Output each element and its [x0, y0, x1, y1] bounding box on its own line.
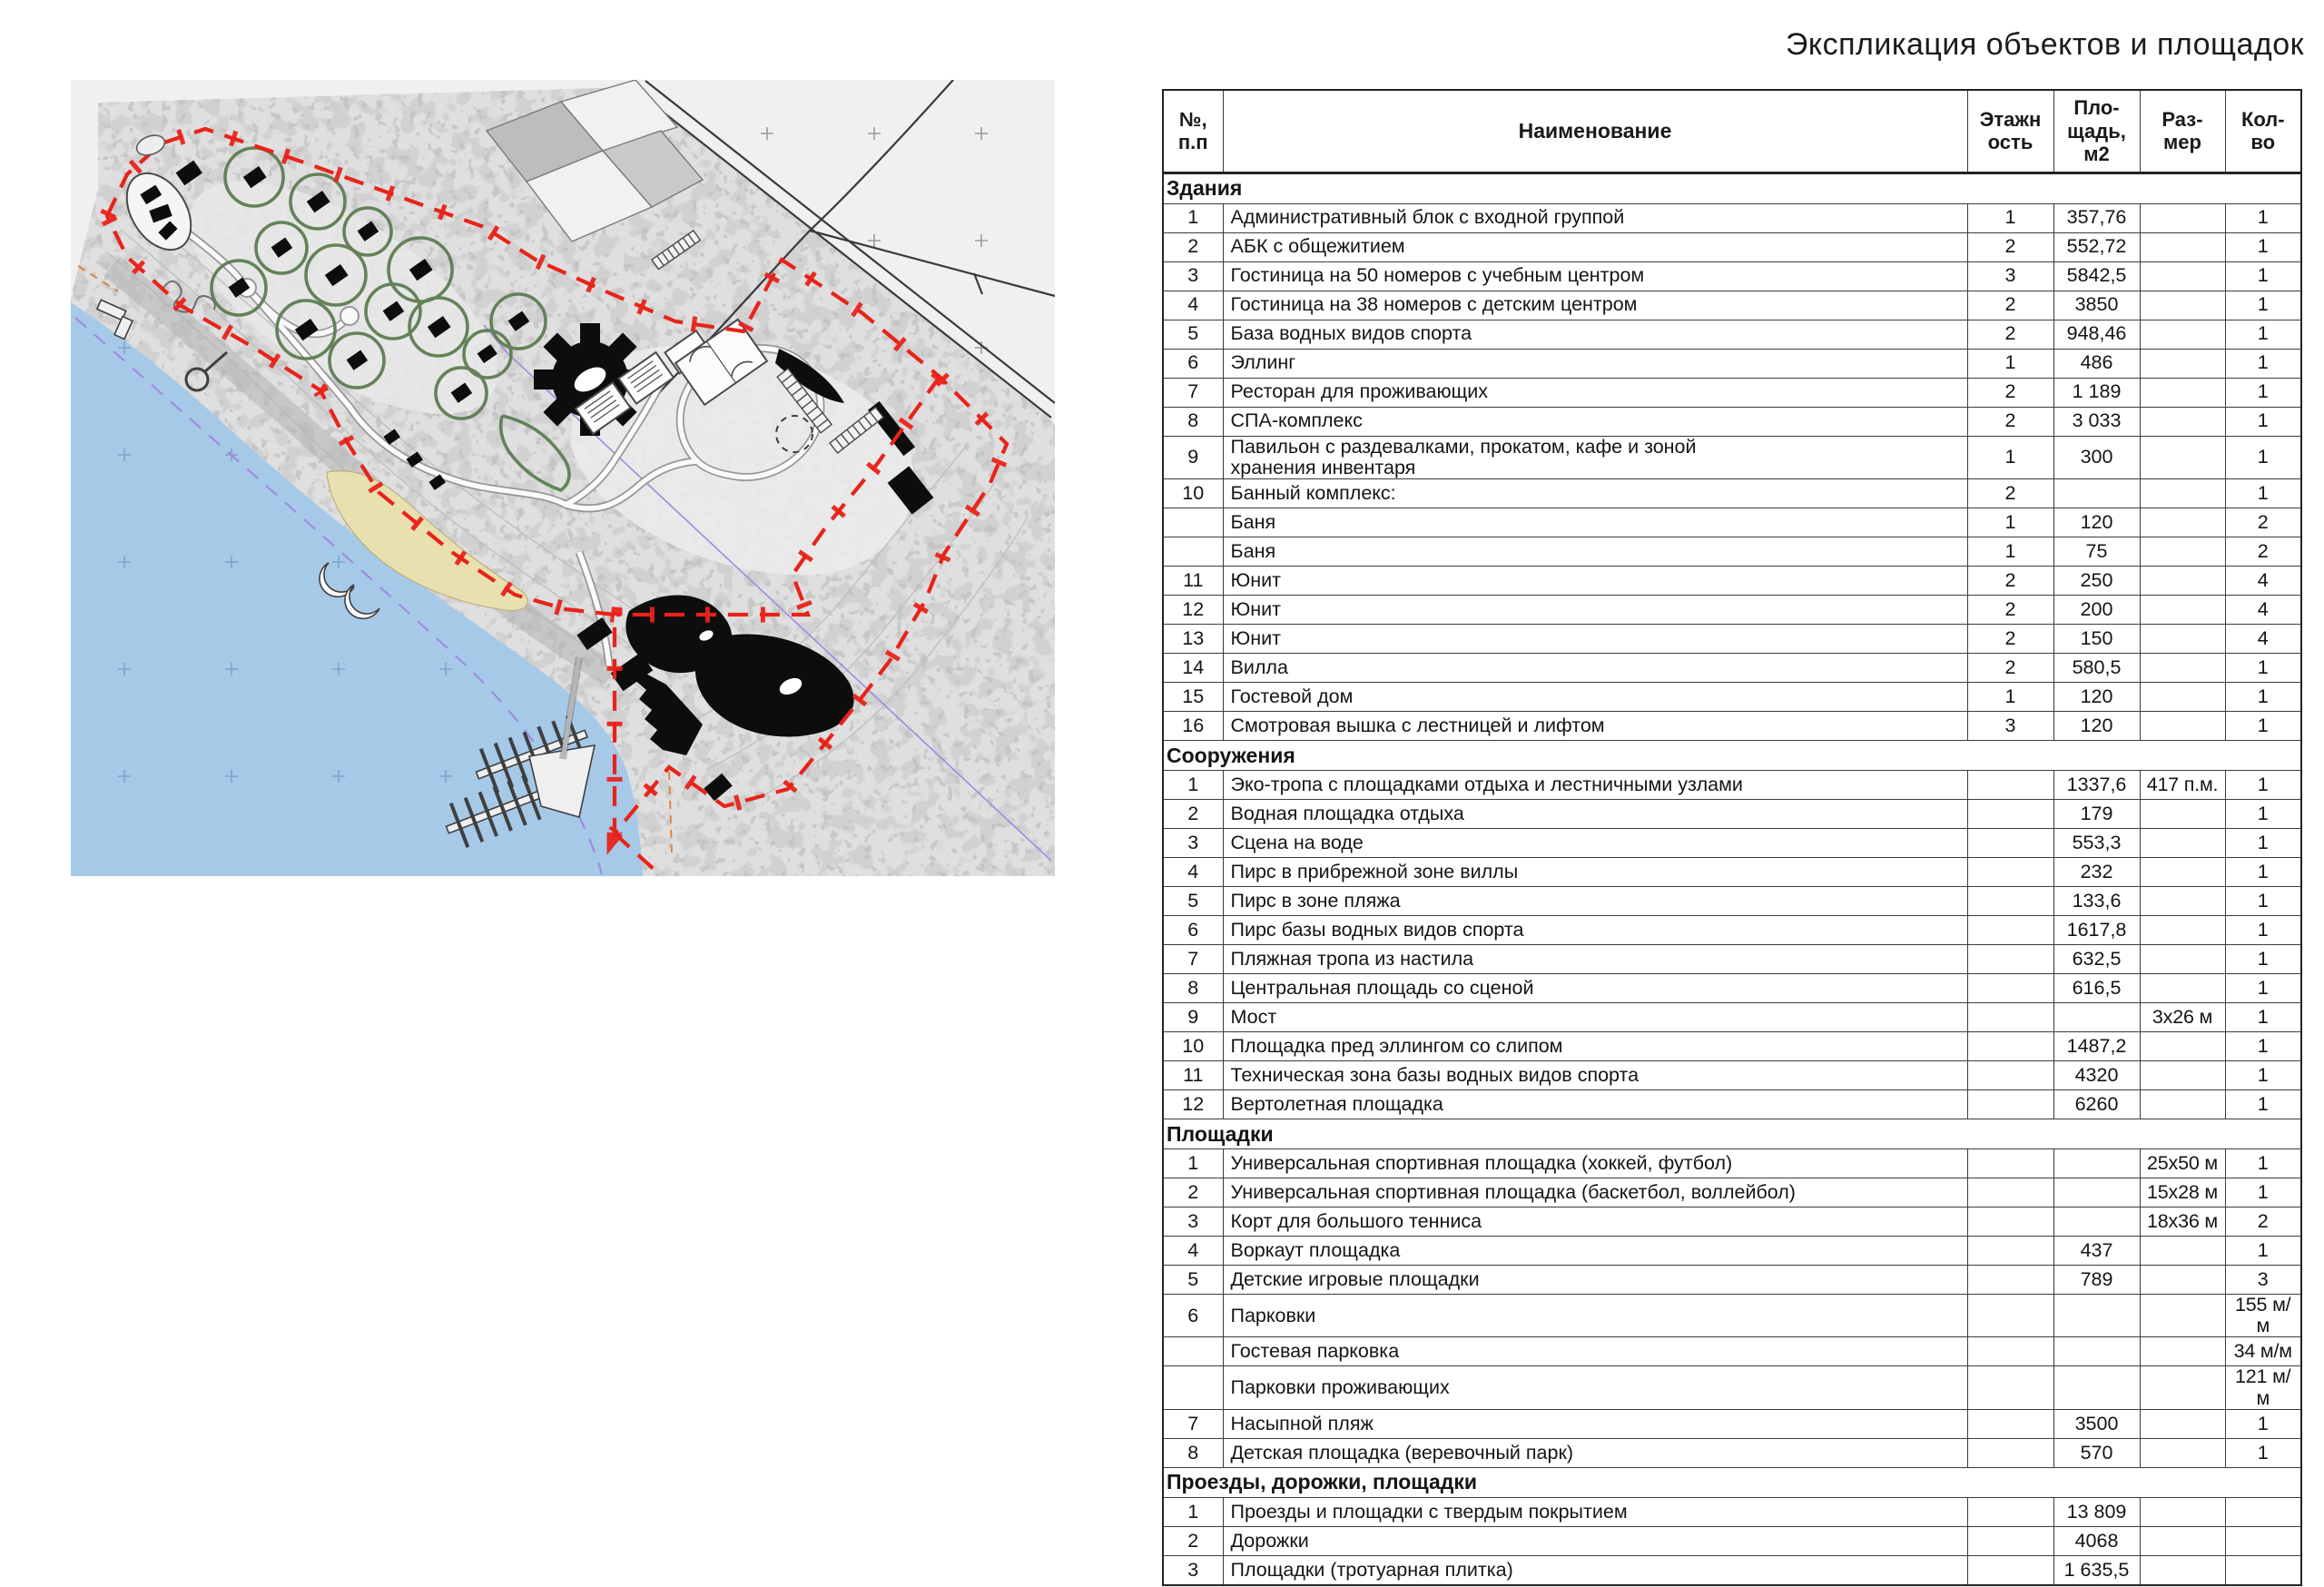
cell-floors: 2 [1967, 653, 2053, 682]
section-row: Площадки [1163, 1119, 2301, 1148]
cell-qty: 4 [2225, 566, 2301, 595]
table-row: Гостевая парковка34 м/м [1163, 1337, 2301, 1366]
cell-floors: 1 [1967, 682, 2053, 711]
cell-size [2140, 973, 2225, 1002]
cell-name: Баня [1223, 537, 1967, 566]
cell-qty: 4 [2225, 624, 2301, 653]
cell-qty: 155 м/м [2225, 1294, 2301, 1336]
cell-area: 486 [2053, 349, 2140, 378]
cell-size [2140, 1337, 2225, 1366]
section-title: Проезды, дорожки, площадки [1163, 1467, 2301, 1497]
cell-size [2140, 1060, 2225, 1089]
cell-name: Площадки (тротуарная плитка) [1223, 1555, 1967, 1585]
cell-floors [1967, 828, 2053, 857]
table-row: 9Павильон с раздевалками, прокатом, кафе… [1163, 436, 2301, 478]
table-body: Здания1Административный блок с входной г… [1163, 172, 2301, 1585]
cell-qty [2225, 1497, 2301, 1526]
table-header: №, п.п Наименование Этажн ость Пло- щадь… [1163, 90, 2301, 172]
cell-area: 120 [2053, 711, 2140, 740]
cell-name: Техническая зона базы водных видов спорт… [1223, 1060, 1967, 1089]
cell-qty: 1 [2225, 436, 2301, 478]
table-row: 8Детская площадка (веревочный парк)5701 [1163, 1438, 2301, 1467]
cell-area [2053, 1207, 2140, 1236]
table-row: 3Площадки (тротуарная плитка)1 635,5 [1163, 1555, 2301, 1585]
cell-area: 616,5 [2053, 973, 2140, 1002]
cell-area: 133,6 [2053, 886, 2140, 915]
cell-num: 13 [1163, 624, 1223, 653]
cell-num: 9 [1163, 1002, 1223, 1031]
cell-floors: 3 [1967, 711, 2053, 740]
cell-size [2140, 1555, 2225, 1585]
cell-size [2140, 407, 2225, 436]
table-row: 6Пирс базы водных видов спорта1617,81 [1163, 915, 2301, 944]
drawing-title: Экспликация объектов и площадок [1786, 27, 2304, 63]
cell-size [2140, 1438, 2225, 1467]
cell-qty: 1 [2225, 1060, 2301, 1089]
cell-num: 4 [1163, 857, 1223, 886]
cell-size [2140, 1497, 2225, 1526]
cell-name: Воркаут площадка [1223, 1236, 1967, 1265]
cell-size [2140, 1526, 2225, 1555]
table-row: 5База водных видов спорта2948,461 [1163, 320, 2301, 349]
cell-num: 16 [1163, 711, 1223, 740]
cell-floors [1967, 1438, 2053, 1467]
cell-area: 948,46 [2053, 320, 2140, 349]
table-row: 4Воркаут площадка4371 [1163, 1236, 2301, 1265]
section-title: Сооружения [1163, 740, 2301, 770]
cell-num [1163, 1337, 1223, 1366]
cell-qty: 1 [2225, 1236, 2301, 1265]
cell-size [2140, 624, 2225, 653]
cell-floors: 2 [1967, 291, 2053, 320]
table-row: 9Мост3х26 м1 [1163, 1002, 2301, 1031]
cell-qty: 1 [2225, 478, 2301, 508]
cell-qty: 121 м/м [2225, 1366, 2301, 1409]
cell-floors [1967, 944, 2053, 973]
cell-size [2140, 320, 2225, 349]
cell-area: 250 [2053, 566, 2140, 595]
cell-qty [2225, 1526, 2301, 1555]
cell-qty: 1 [2225, 711, 2301, 740]
cell-qty: 4 [2225, 595, 2301, 624]
table-row: 4Гостиница на 38 номеров с детским центр… [1163, 291, 2301, 320]
cell-area: 4068 [2053, 1526, 2140, 1555]
cell-area: 120 [2053, 508, 2140, 537]
cell-floors [1967, 973, 2053, 1002]
cell-qty: 1 [2225, 682, 2301, 711]
cell-floors [1967, 1409, 2053, 1438]
cell-name: Эко-тропа с площадками отдыха и лестничн… [1223, 770, 1967, 799]
cell-size [2140, 886, 2225, 915]
cell-floors [1967, 1178, 2053, 1207]
cell-size [2140, 436, 2225, 478]
cell-floors [1967, 1294, 2053, 1336]
cell-floors [1967, 1497, 2053, 1526]
cell-floors: 2 [1967, 624, 2053, 653]
cell-num: 7 [1163, 1409, 1223, 1438]
cell-name: Эллинг [1223, 349, 1967, 378]
cell-qty: 1 [2225, 799, 2301, 828]
table-row: 7Насыпной пляж35001 [1163, 1409, 2301, 1438]
table-row: 8СПА-комплекс23 0331 [1163, 407, 2301, 436]
table-row: 2АБК с общежитием2552,721 [1163, 232, 2301, 261]
roundabout [340, 307, 359, 325]
cell-num: 1 [1163, 1148, 1223, 1178]
cell-name: Пляжная тропа из настила [1223, 944, 1967, 973]
cell-qty: 1 [2225, 770, 2301, 799]
cell-size: 417 п.м. [2140, 770, 2225, 799]
cell-floors [1967, 1265, 2053, 1294]
cell-qty: 1 [2225, 320, 2301, 349]
cell-floors: 1 [1967, 508, 2053, 537]
cell-floors: 3 [1967, 261, 2053, 291]
cell-num: 5 [1163, 1265, 1223, 1294]
cell-area [2053, 1178, 2140, 1207]
cell-floors [1967, 1031, 2053, 1060]
explication-table: №, п.п Наименование Этажн ость Пло- щадь… [1162, 89, 2302, 1586]
cell-num: 3 [1163, 828, 1223, 857]
table-row: 13Юнит21504 [1163, 624, 2301, 653]
cell-floors: 2 [1967, 566, 2053, 595]
cell-name: Детские игровые площадки [1223, 1265, 1967, 1294]
cell-area: 437 [2053, 1236, 2140, 1265]
cell-size [2140, 349, 2225, 378]
cell-area: 357,76 [2053, 203, 2140, 232]
cell-num: 15 [1163, 682, 1223, 711]
cell-area [2053, 1148, 2140, 1178]
cell-size [2140, 232, 2225, 261]
section-row: Сооружения [1163, 740, 2301, 770]
cell-num: 8 [1163, 1438, 1223, 1467]
table-row: 5Пирс в зоне пляжа133,61 [1163, 886, 2301, 915]
cell-num: 10 [1163, 478, 1223, 508]
cell-floors: 2 [1967, 407, 2053, 436]
cell-area: 75 [2053, 537, 2140, 566]
section-row: Проезды, дорожки, площадки [1163, 1467, 2301, 1497]
cell-floors: 1 [1967, 537, 2053, 566]
cell-area: 13 809 [2053, 1497, 2140, 1526]
cell-num: 5 [1163, 886, 1223, 915]
cell-size [2140, 291, 2225, 320]
cell-size [2140, 799, 2225, 828]
cell-size [2140, 595, 2225, 624]
cell-floors [1967, 1060, 2053, 1089]
cell-floors: 1 [1967, 203, 2053, 232]
cell-name: Парковки [1223, 1294, 1967, 1336]
cell-num [1163, 1366, 1223, 1409]
table-row: 11Техническая зона базы водных видов спо… [1163, 1060, 2301, 1089]
cell-name: Вертолетная площадка [1223, 1089, 1967, 1119]
cell-qty: 1 [2225, 203, 2301, 232]
cell-size [2140, 1236, 2225, 1265]
site-plan-map [71, 80, 1055, 876]
cell-size [2140, 203, 2225, 232]
cell-area: 3850 [2053, 291, 2140, 320]
cell-name: СПА-комплекс [1223, 407, 1967, 436]
cell-size [2140, 1366, 2225, 1409]
cell-size: 15х28 м [2140, 1178, 2225, 1207]
cell-size [2140, 566, 2225, 595]
cell-size [2140, 1031, 2225, 1060]
cell-name: Банный комплекс: [1223, 478, 1967, 508]
cell-qty: 1 [2225, 857, 2301, 886]
col-header-name: Наименование [1223, 90, 1967, 172]
col-header-floors: Этажн ость [1967, 90, 2053, 172]
cell-area: 580,5 [2053, 653, 2140, 682]
cell-qty: 1 [2225, 1438, 2301, 1467]
cell-num: 1 [1163, 203, 1223, 232]
table-row: 1Универсальная спортивная площадка (хокк… [1163, 1148, 2301, 1178]
col-header-size: Раз- мер [2140, 90, 2225, 172]
cell-name: Универсальная спортивная площадка (хокке… [1223, 1148, 1967, 1178]
table-row: 7Пляжная тропа из настила632,51 [1163, 944, 2301, 973]
cell-num: 4 [1163, 291, 1223, 320]
cell-qty: 1 [2225, 1002, 2301, 1031]
table-row: 6Парковки155 м/м [1163, 1294, 2301, 1336]
cell-size [2140, 944, 2225, 973]
cell-num [1163, 537, 1223, 566]
cell-qty: 1 [2225, 1409, 2301, 1438]
cell-area: 4320 [2053, 1060, 2140, 1089]
cell-name: Корт для большого тенниса [1223, 1207, 1967, 1236]
cell-size [2140, 711, 2225, 740]
cell-num: 6 [1163, 1294, 1223, 1336]
cell-qty: 2 [2225, 1207, 2301, 1236]
cell-name: Площадка пред эллингом со слипом [1223, 1031, 1967, 1060]
cell-floors: 2 [1967, 595, 2053, 624]
cell-name: Юнит [1223, 595, 1967, 624]
cell-num: 7 [1163, 944, 1223, 973]
table-row: 2Универсальная спортивная площадка (баск… [1163, 1178, 2301, 1207]
cell-floors [1967, 1089, 2053, 1119]
table-row: 2Дорожки4068 [1163, 1526, 2301, 1555]
cell-num: 1 [1163, 1497, 1223, 1526]
cell-num: 6 [1163, 915, 1223, 944]
cell-size: 18х36 м [2140, 1207, 2225, 1236]
table-row: 1Административный блок с входной группой… [1163, 203, 2301, 232]
cell-name: Баня [1223, 508, 1967, 537]
cell-num: 4 [1163, 1236, 1223, 1265]
cell-num: 2 [1163, 1178, 1223, 1207]
cell-area: 1617,8 [2053, 915, 2140, 944]
cell-floors [1967, 770, 2053, 799]
cell-area [2053, 1366, 2140, 1409]
cell-area: 232 [2053, 857, 2140, 886]
table-row: 14Вилла2580,51 [1163, 653, 2301, 682]
cell-size [2140, 828, 2225, 857]
cell-qty: 2 [2225, 537, 2301, 566]
cell-area: 3500 [2053, 1409, 2140, 1438]
table-row: 10Банный комплекс:21 [1163, 478, 2301, 508]
cell-num: 5 [1163, 320, 1223, 349]
cell-floors [1967, 1207, 2053, 1236]
cell-name: Водная площадка отдыха [1223, 799, 1967, 828]
table-row: 4Пирс в прибрежной зоне виллы2321 [1163, 857, 2301, 886]
cell-name: Дорожки [1223, 1526, 1967, 1555]
table-row: Баня11202 [1163, 508, 2301, 537]
cell-name: Павильон с раздевалками, прокатом, кафе … [1223, 436, 1967, 478]
cell-floors [1967, 1337, 2053, 1366]
cell-qty: 1 [2225, 886, 2301, 915]
cell-num: 8 [1163, 973, 1223, 1002]
table-row: 16Смотровая вышка с лестницей и лифтом31… [1163, 711, 2301, 740]
cell-floors: 1 [1967, 436, 2053, 478]
cell-area: 553,3 [2053, 828, 2140, 857]
cell-size [2140, 537, 2225, 566]
cell-num: 9 [1163, 436, 1223, 478]
cell-name: Юнит [1223, 566, 1967, 595]
cell-area [2053, 478, 2140, 508]
cell-num: 3 [1163, 1555, 1223, 1585]
cell-size [2140, 378, 2225, 407]
cell-area: 120 [2053, 682, 2140, 711]
cell-floors [1967, 857, 2053, 886]
cell-qty: 3 [2225, 1265, 2301, 1294]
table-row: Баня1752 [1163, 537, 2301, 566]
cell-area [2053, 1002, 2140, 1031]
cell-name: Ресторан для проживающих [1223, 378, 1967, 407]
cell-name: Пирс в прибрежной зоне виллы [1223, 857, 1967, 886]
cell-floors [1967, 886, 2053, 915]
cell-name: АБК с общежитием [1223, 232, 1967, 261]
cell-qty: 1 [2225, 944, 2301, 973]
table-row: 5Детские игровые площадки7893 [1163, 1265, 2301, 1294]
cell-qty [2225, 1555, 2301, 1585]
table-row: Парковки проживающих121 м/м [1163, 1366, 2301, 1409]
cell-floors [1967, 1526, 2053, 1555]
cell-area: 179 [2053, 799, 2140, 828]
cell-floors [1967, 1002, 2053, 1031]
cell-num: 2 [1163, 232, 1223, 261]
cell-name: Центральная площадь со сценой [1223, 973, 1967, 1002]
cell-floors: 2 [1967, 378, 2053, 407]
cell-num: 8 [1163, 407, 1223, 436]
cell-num [1163, 508, 1223, 537]
cell-num: 11 [1163, 1060, 1223, 1089]
cell-qty: 1 [2225, 232, 2301, 261]
cell-qty: 34 м/м [2225, 1337, 2301, 1366]
cell-name: Гостевая парковка [1223, 1337, 1967, 1366]
cell-name: Гостиница на 50 номеров с учебным центро… [1223, 261, 1967, 291]
cell-floors: 2 [1967, 478, 2053, 508]
cell-num: 6 [1163, 349, 1223, 378]
cell-size [2140, 1409, 2225, 1438]
section-title: Здания [1163, 172, 2301, 203]
col-header-area: Пло- щадь, м2 [2053, 90, 2140, 172]
cell-num: 12 [1163, 1089, 1223, 1119]
cell-qty: 1 [2225, 1148, 2301, 1178]
cell-qty: 1 [2225, 407, 2301, 436]
cell-area: 632,5 [2053, 944, 2140, 973]
cell-qty: 1 [2225, 261, 2301, 291]
cell-name: Детская площадка (веревочный парк) [1223, 1438, 1967, 1467]
cell-qty: 1 [2225, 349, 2301, 378]
cell-floors: 2 [1967, 320, 2053, 349]
table-row: 8Центральная площадь со сценой616,51 [1163, 973, 2301, 1002]
cell-floors [1967, 799, 2053, 828]
cell-qty: 1 [2225, 1031, 2301, 1060]
cell-num: 2 [1163, 1526, 1223, 1555]
table-row: 3Сцена на воде553,31 [1163, 828, 2301, 857]
cell-name: Пирс в зоне пляжа [1223, 886, 1967, 915]
table-row: 11Юнит22504 [1163, 566, 2301, 595]
cell-num: 2 [1163, 799, 1223, 828]
cell-size [2140, 508, 2225, 537]
cell-num: 11 [1163, 566, 1223, 595]
cell-floors [1967, 915, 2053, 944]
site-plan-svg [71, 80, 1055, 876]
cell-num: 12 [1163, 595, 1223, 624]
cell-area: 3 033 [2053, 407, 2140, 436]
cell-size [2140, 682, 2225, 711]
cell-num: 3 [1163, 1207, 1223, 1236]
cell-size [2140, 261, 2225, 291]
cell-name: Пирс базы водных видов спорта [1223, 915, 1967, 944]
table-row: 12Юнит22004 [1163, 595, 2301, 624]
cell-floors [1967, 1148, 2053, 1178]
section-title: Площадки [1163, 1119, 2301, 1148]
cell-qty: 1 [2225, 915, 2301, 944]
cell-name: Юнит [1223, 624, 1967, 653]
cell-qty: 2 [2225, 508, 2301, 537]
table-row: 6Эллинг14861 [1163, 349, 2301, 378]
cell-qty: 1 [2225, 1089, 2301, 1119]
cell-area: 200 [2053, 595, 2140, 624]
cell-size: 3х26 м [2140, 1002, 2225, 1031]
cell-size [2140, 653, 2225, 682]
cell-name: Гостиница на 38 номеров с детским центро… [1223, 291, 1967, 320]
col-header-qty: Кол- во [2225, 90, 2301, 172]
cell-area: 1 635,5 [2053, 1555, 2140, 1585]
cell-qty: 1 [2225, 973, 2301, 1002]
cell-num: 14 [1163, 653, 1223, 682]
cell-size [2140, 1265, 2225, 1294]
cell-floors [1967, 1366, 2053, 1409]
cell-area: 300 [2053, 436, 2140, 478]
cell-size [2140, 478, 2225, 508]
cell-num: 7 [1163, 378, 1223, 407]
cell-size [2140, 1294, 2225, 1336]
table-row: 3Корт для большого тенниса18х36 м2 [1163, 1207, 2301, 1236]
cell-area: 552,72 [2053, 232, 2140, 261]
table-row: 7Ресторан для проживающих21 1891 [1163, 378, 2301, 407]
cell-name: Смотровая вышка с лестницей и лифтом [1223, 711, 1967, 740]
cell-qty: 1 [2225, 378, 2301, 407]
table-row: 10Площадка пред эллингом со слипом1487,2… [1163, 1031, 2301, 1060]
cell-floors: 1 [1967, 349, 2053, 378]
cell-floors: 2 [1967, 232, 2053, 261]
section-row: Здания [1163, 172, 2301, 203]
cell-name: Парковки проживающих [1223, 1366, 1967, 1409]
cell-area: 1487,2 [2053, 1031, 2140, 1060]
cell-name: Административный блок с входной группой [1223, 203, 1967, 232]
table-row: 1Проезды и площадки с твердым покрытием1… [1163, 1497, 2301, 1526]
cell-name: База водных видов спорта [1223, 320, 1967, 349]
cell-size [2140, 915, 2225, 944]
cell-area: 6260 [2053, 1089, 2140, 1119]
cell-qty: 1 [2225, 828, 2301, 857]
cell-name: Проезды и площадки с твердым покрытием [1223, 1497, 1967, 1526]
table-row: 15Гостевой дом11201 [1163, 682, 2301, 711]
cell-qty: 1 [2225, 1178, 2301, 1207]
cell-name: Универсальная спортивная площадка (баске… [1223, 1178, 1967, 1207]
cell-name: Вилла [1223, 653, 1967, 682]
cell-area: 789 [2053, 1265, 2140, 1294]
cell-qty: 1 [2225, 653, 2301, 682]
cell-area [2053, 1294, 2140, 1336]
cell-num: 10 [1163, 1031, 1223, 1060]
cell-num: 3 [1163, 261, 1223, 291]
